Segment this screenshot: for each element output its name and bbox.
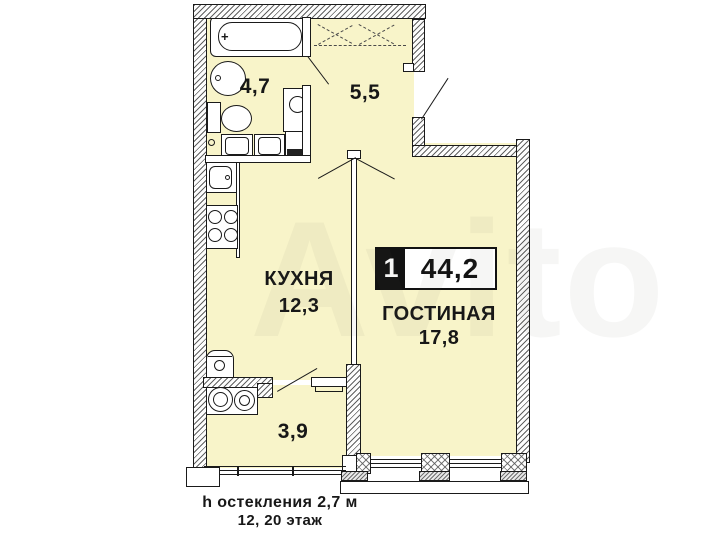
bathroom-floor-drain <box>208 139 215 146</box>
wall-bathroom-right-lower <box>302 85 311 158</box>
loggia-area-label: 3,9 <box>263 421 323 442</box>
wall-entry-jamb <box>403 63 414 72</box>
bathroom-cabinet-2-inner <box>225 137 249 155</box>
living-room-floor <box>355 143 518 456</box>
stove-burner-1 <box>208 210 222 224</box>
living-window-right <box>449 459 503 468</box>
glazing-tick-2 <box>292 467 294 476</box>
partition-kitchen-living <box>351 158 357 378</box>
loggia-glazing <box>204 466 346 475</box>
pillar-loggia-living <box>346 364 361 457</box>
toilet-tank <box>207 102 221 133</box>
wall-bathroom-right-upper <box>302 17 311 57</box>
kitchen-name-label: КУХНЯ <box>239 269 359 289</box>
living-window-right-midline <box>449 463 503 464</box>
wall-right <box>516 139 530 463</box>
kitchen-washer-panel <box>208 356 232 357</box>
wall-bathroom-bottom <box>205 155 311 163</box>
loggia-glazing-midline <box>204 470 346 471</box>
stove-burner-3 <box>208 228 222 242</box>
bathroom-cabinet-3-inner <box>258 137 281 155</box>
entry-door-swing <box>421 78 449 120</box>
bathtub-inner <box>218 22 302 51</box>
living-room-name-label: ГОСТИНАЯ <box>369 304 509 324</box>
corner-block-bottom-left <box>186 467 220 487</box>
living-window-left-midline <box>370 463 423 464</box>
radiator-left <box>341 471 368 481</box>
glazing-height-note: h остекления 2,7 м <box>140 495 420 511</box>
sink-drain <box>215 75 221 81</box>
bathtub-faucet: + <box>221 29 229 44</box>
radiator-right <box>500 471 527 481</box>
rooms-count-badge: 1 <box>377 249 405 288</box>
balcony-slab-outline <box>340 481 529 494</box>
wall-kitchen-loggia-jamb <box>257 383 273 398</box>
kitchen-sink-drain <box>225 175 230 180</box>
bathroom-area-label: 4,7 <box>225 76 285 97</box>
loggia-dryer-drum-inner <box>239 395 250 406</box>
wardrobe-dashed-line <box>314 45 406 46</box>
wall-left <box>193 4 207 468</box>
stove-burner-4 <box>224 228 238 242</box>
kitchen-washer-knob <box>214 360 225 371</box>
toilet-bowl <box>221 105 252 132</box>
loggia-washer-drum-inner <box>213 392 228 407</box>
radiator-center <box>419 471 450 481</box>
living-window-left <box>370 459 423 468</box>
total-area-badge: 1 44,2 <box>375 247 497 290</box>
glazing-tick-1 <box>237 467 239 476</box>
kitchen-area-label: 12,3 <box>239 296 359 316</box>
hallway-area-label: 5,5 <box>335 82 395 103</box>
floor-plan: + <box>0 0 720 534</box>
stove-burner-2 <box>224 210 238 224</box>
wall-living-top <box>412 145 518 157</box>
living-room-area-label: 17,8 <box>369 328 509 348</box>
kitchen-loggia-window-sill <box>315 386 343 392</box>
total-area-value: 44,2 <box>405 249 495 288</box>
floor-info-note: 12, 20 этаж <box>140 513 420 528</box>
